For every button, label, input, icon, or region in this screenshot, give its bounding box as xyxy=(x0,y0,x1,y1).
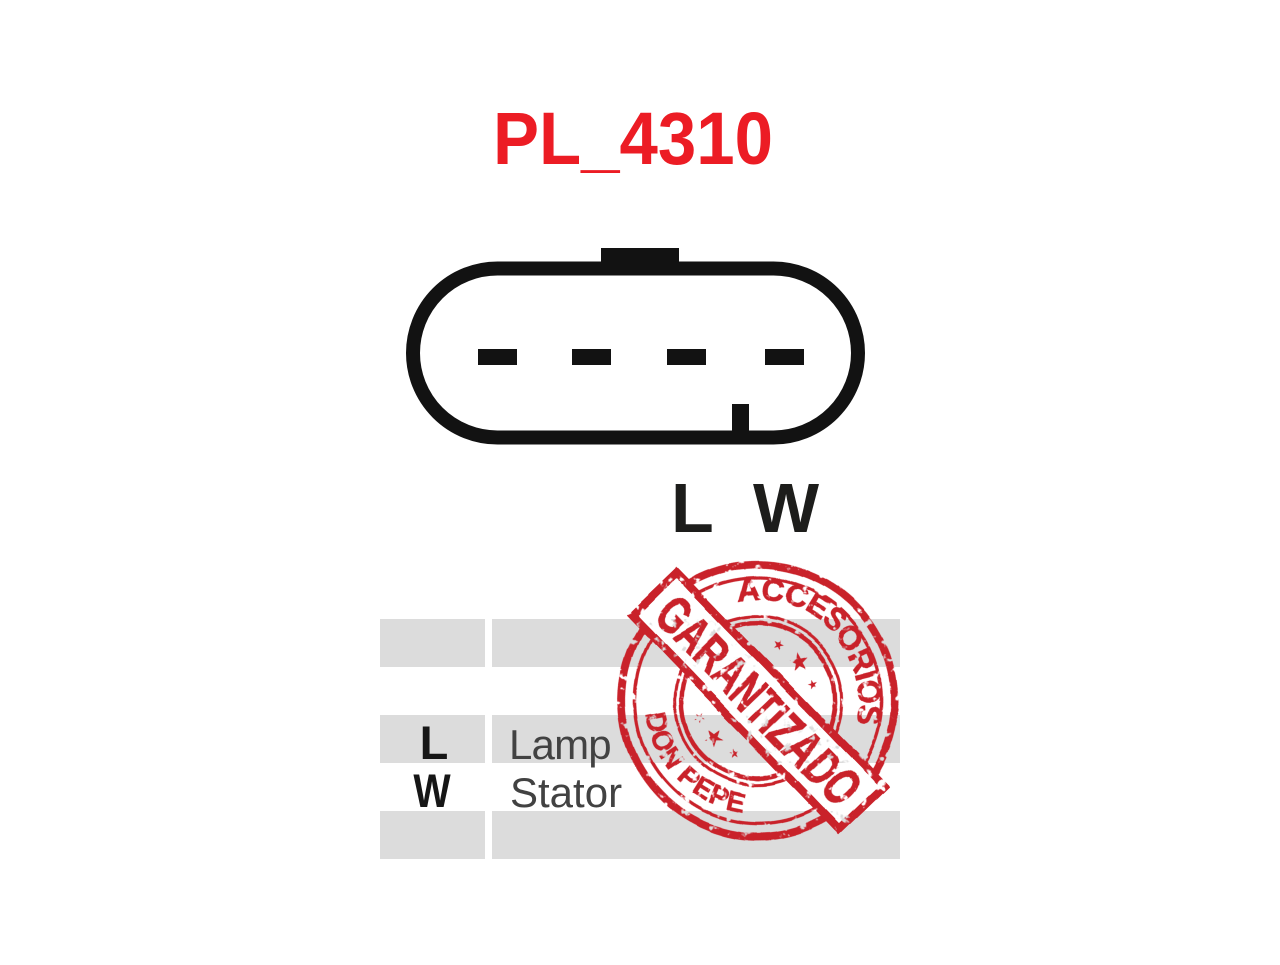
svg-text:W: W xyxy=(413,766,450,818)
svg-text:W: W xyxy=(753,469,819,547)
svg-text:Stator: Stator xyxy=(510,769,622,816)
svg-text:L: L xyxy=(671,469,714,547)
svg-text:PL_4310: PL_4310 xyxy=(493,97,773,180)
svg-text:L: L xyxy=(420,716,449,769)
svg-text:Lamp: Lamp xyxy=(509,721,611,768)
